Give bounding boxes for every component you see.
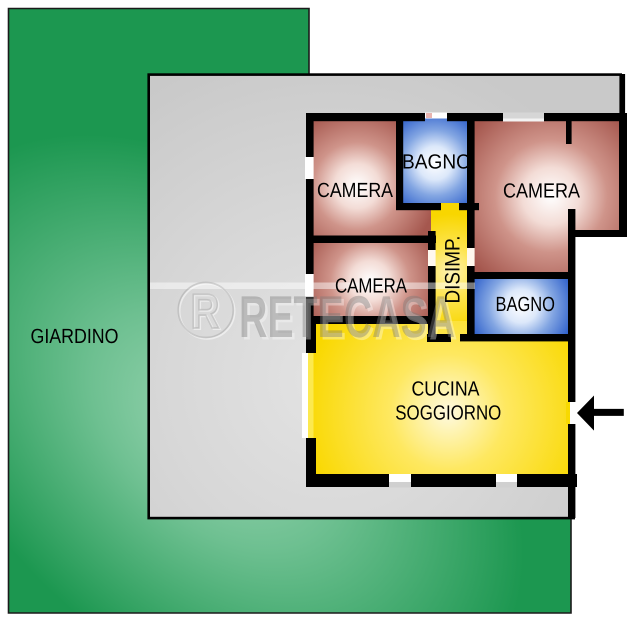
svg-text:SOGGIORNO: SOGGIORNO: [395, 402, 501, 425]
svg-text:DISIMP.: DISIMP.: [442, 236, 465, 304]
svg-text:CAMERA: CAMERA: [503, 180, 580, 203]
svg-text:R: R: [191, 285, 220, 339]
svg-text:BAGNO: BAGNO: [402, 151, 471, 174]
svg-text:BAGNO: BAGNO: [496, 293, 556, 316]
svg-text:GIARDINO: GIARDINO: [31, 325, 119, 348]
svg-text:CAMERA: CAMERA: [317, 179, 393, 202]
svg-text:CUCINA: CUCINA: [412, 378, 480, 401]
svg-text:CAMERA: CAMERA: [335, 275, 407, 298]
